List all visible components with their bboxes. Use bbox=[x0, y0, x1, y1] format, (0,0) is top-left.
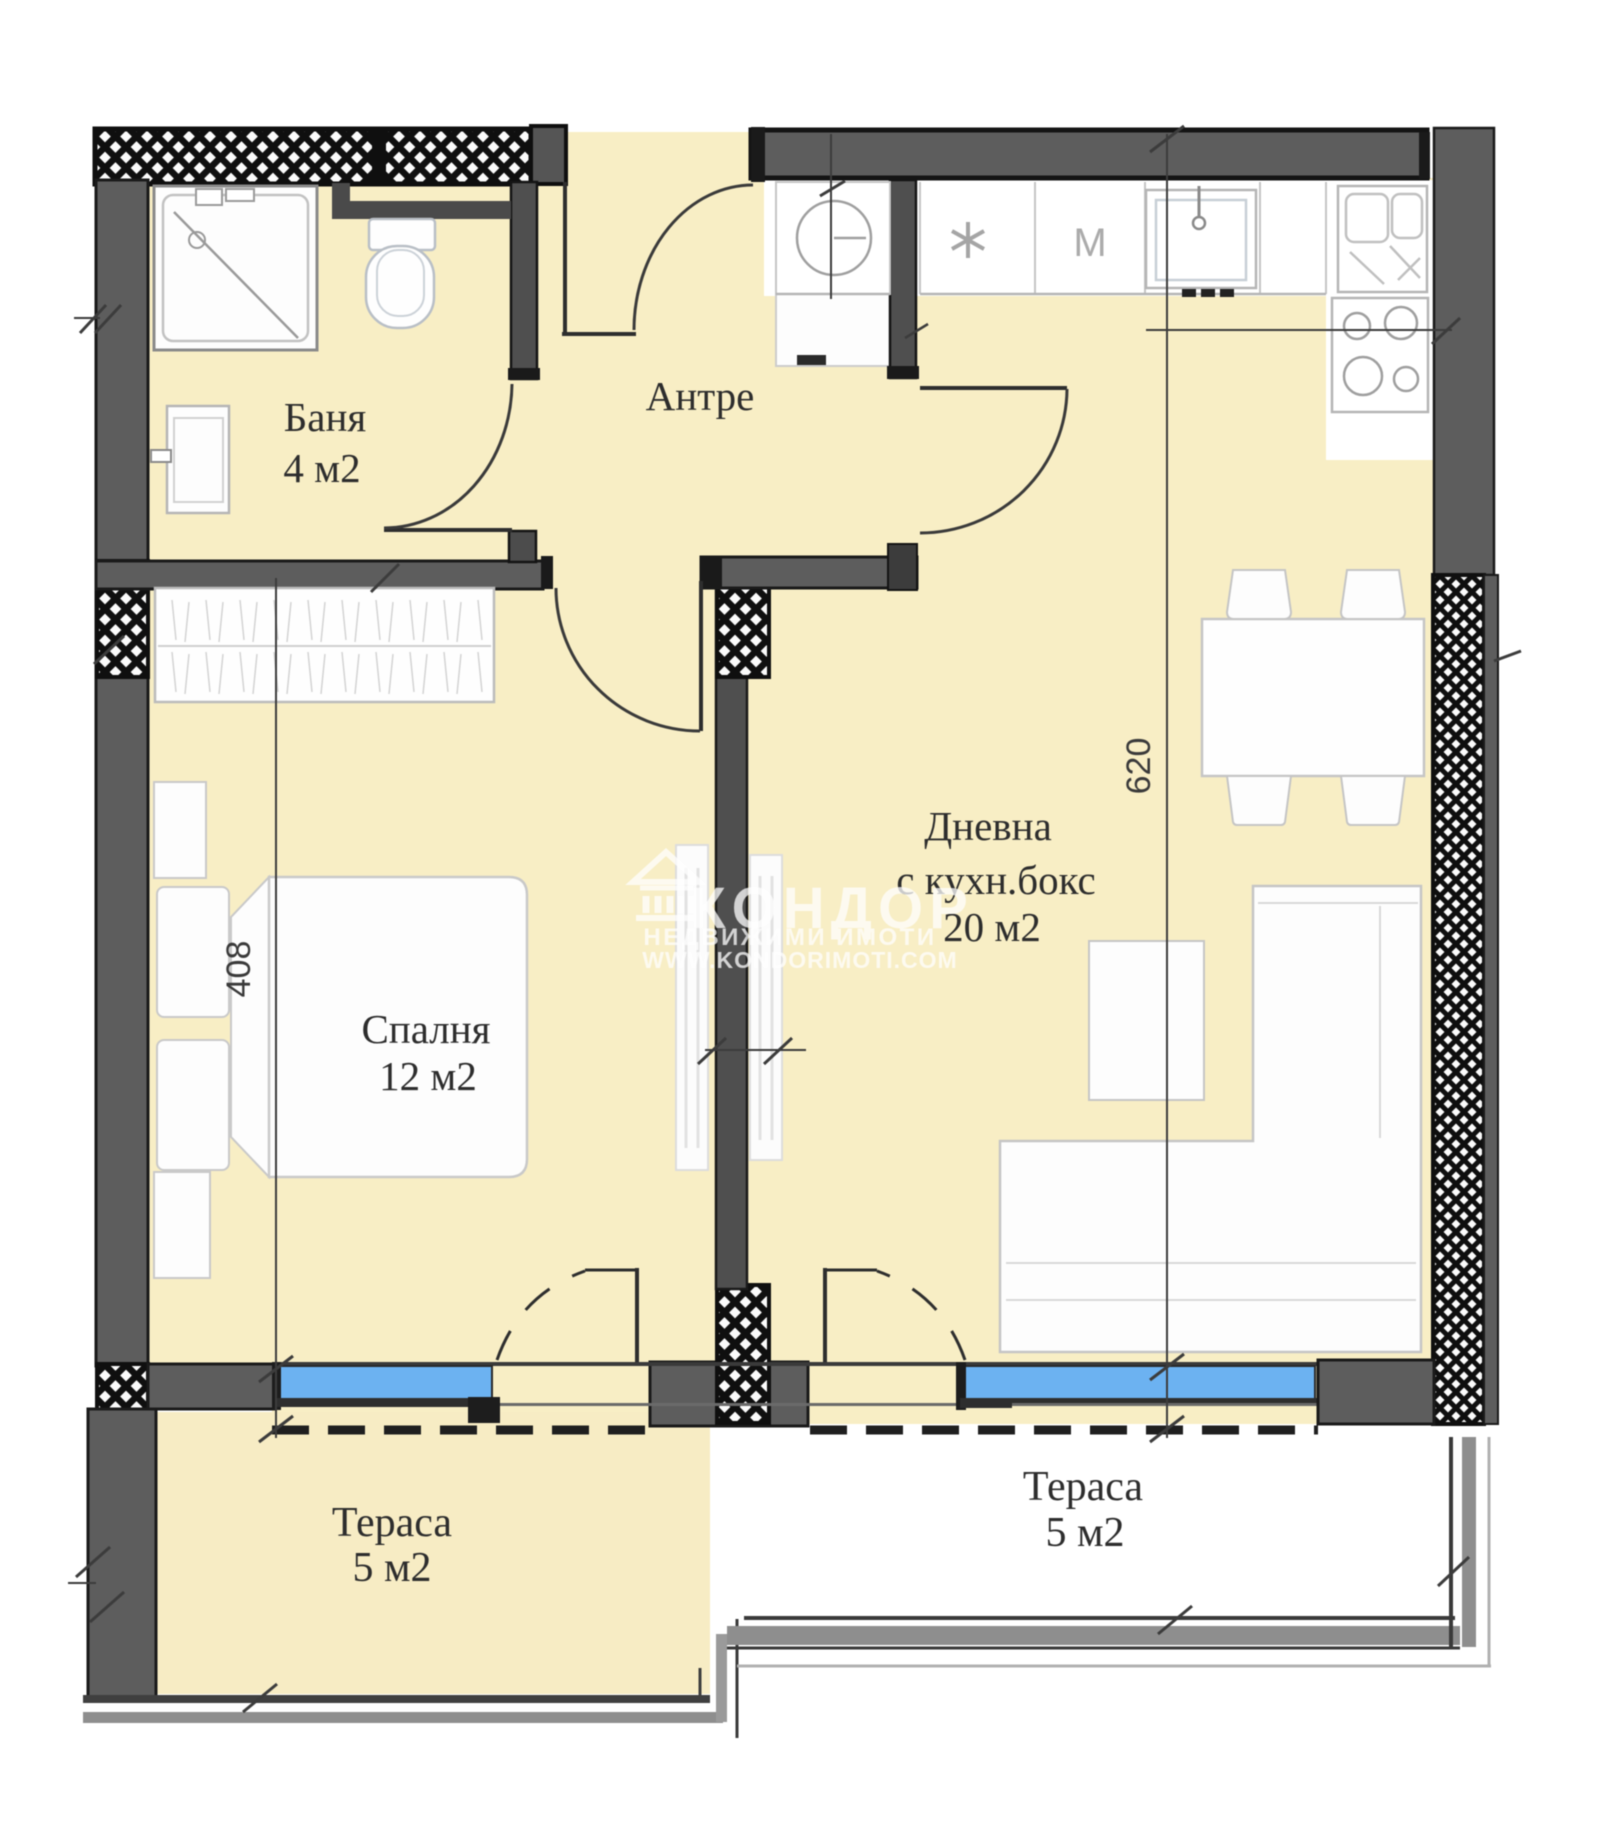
svg-text:Тераса: Тераса bbox=[1023, 1464, 1143, 1510]
svg-text:620: 620 bbox=[1120, 738, 1158, 795]
svg-text:12 м2: 12 м2 bbox=[379, 1053, 477, 1099]
svg-text:Дневна: Дневна bbox=[924, 803, 1052, 849]
svg-text:5 м2: 5 м2 bbox=[1045, 1510, 1124, 1556]
svg-text:WWW.KONDORIMOTI.COM: WWW.KONDORIMOTI.COM bbox=[642, 947, 957, 973]
svg-text:Спалня: Спалня bbox=[361, 1006, 490, 1052]
svg-text:5 м2: 5 м2 bbox=[352, 1545, 431, 1591]
svg-text:M: M bbox=[1073, 221, 1106, 265]
svg-text:Баня: Баня bbox=[284, 394, 367, 440]
svg-text:4 м2: 4 м2 bbox=[283, 445, 360, 491]
svg-text:408: 408 bbox=[220, 941, 258, 998]
svg-text:Антре: Антре bbox=[646, 373, 755, 419]
svg-text:Тераса: Тераса bbox=[332, 1500, 452, 1546]
